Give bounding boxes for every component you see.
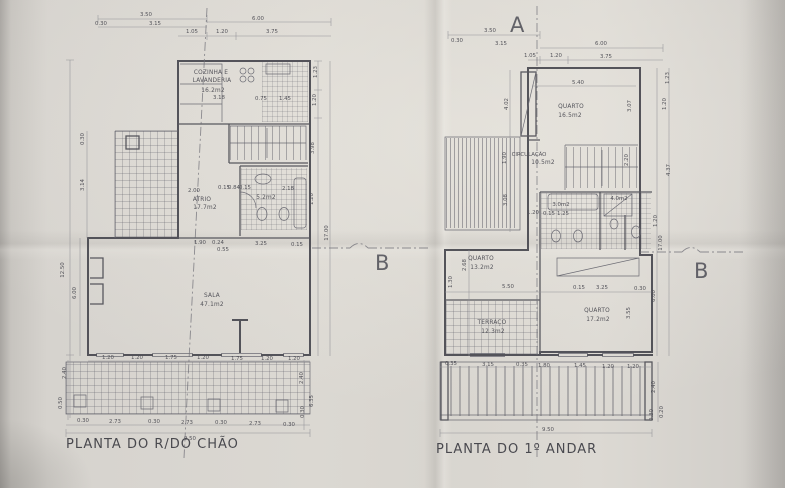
toilet xyxy=(257,208,267,221)
dim-label: 3.18 xyxy=(213,95,226,101)
room-area-sala: 47.1m2 xyxy=(200,302,224,308)
dim-label: 1.23 xyxy=(313,66,319,78)
dim-label: 3.50 xyxy=(140,12,153,18)
dim-label: 1.20 xyxy=(627,364,640,370)
room-label-kitchen: LAVANDERIA xyxy=(193,78,232,84)
stove-burner xyxy=(240,68,246,74)
room-label-quarto3: QUARTO xyxy=(584,308,610,314)
dim-label: 1.90 xyxy=(194,240,207,246)
caption-first-floor: PLANTA DO 1º ANDAR xyxy=(436,442,597,457)
room-label-kitchen: COZINHA E xyxy=(194,70,228,76)
dim-label: 1.20 xyxy=(527,210,540,216)
right-plan-linework xyxy=(440,31,669,437)
dim-label: 17.00 xyxy=(324,225,330,241)
pergola-frame xyxy=(440,362,652,420)
room-area-kitchen: 16.2m2 xyxy=(201,88,225,94)
dim-label: 0.30 xyxy=(634,286,647,292)
dim-label: 3.15 xyxy=(149,21,161,27)
dim-label: 2.68 xyxy=(462,258,468,271)
right-plan-labels: 3.50 0.30 3.15 6.00 1.05 1.20 3.75 5.40 … xyxy=(445,28,672,433)
dim-label: 0.35 xyxy=(445,361,457,367)
dim-label: 0.15 xyxy=(239,185,251,191)
bidet xyxy=(279,208,289,221)
room-area-quarto2: 13.2m2 xyxy=(470,265,494,271)
dim-label: 1.20 xyxy=(216,29,229,35)
section-marker-b: B xyxy=(694,259,708,283)
sink xyxy=(610,219,618,229)
terrace-columns xyxy=(74,395,288,412)
dim-label: 3.75 xyxy=(600,54,612,60)
dim-label: 3.15 xyxy=(495,41,507,47)
dim-label: 1.75 xyxy=(165,355,177,361)
dim-label: 3.75 xyxy=(266,29,278,35)
dim-label: 0.15 xyxy=(543,211,555,217)
room-area-is-suite: 4.0m2 xyxy=(610,196,627,202)
left-plan-labels: 3.50 0.30 3.15 6.00 1.05 1.20 3.75 COZIN… xyxy=(58,12,330,442)
dim-label: 3.55 xyxy=(626,307,632,319)
dim-label: 1.05 xyxy=(524,53,536,59)
interior-walls xyxy=(445,140,652,352)
dimension-lines xyxy=(440,31,669,437)
dim-label: 0.35 xyxy=(516,362,528,368)
dim-label: 2.73 xyxy=(181,420,193,426)
room-label-atrio: ATRIO xyxy=(193,197,212,203)
dim-label: 1.30 xyxy=(448,275,454,288)
dim-label: 1.05 xyxy=(186,29,198,35)
room-area-bath: 5.2m2 xyxy=(256,195,276,201)
toilet xyxy=(552,230,561,242)
dim-label: 5.40 xyxy=(572,80,585,86)
dim-label: 0.30 xyxy=(451,38,464,44)
room-area-circulacao: 10.5m2 xyxy=(531,160,555,166)
dim-label: 3.15 xyxy=(482,362,494,368)
dim-label: 3.14 xyxy=(80,178,86,191)
room-label-quarto1: QUARTO xyxy=(558,104,584,110)
dim-label-total: 9.50 xyxy=(542,427,555,433)
stove-burner xyxy=(248,76,254,82)
floor-plan-drawing: A B B 3.50 0.30 3.15 6.00 1.05 1.20 3.75… xyxy=(0,0,785,488)
dim-label: 0.50 xyxy=(58,396,64,409)
dim-label: 0.30 xyxy=(300,405,306,418)
dim-label: 0.30 xyxy=(80,132,86,145)
room-area-atrio: 17.7m2 xyxy=(193,205,217,211)
dim-label: 0.75 xyxy=(255,96,267,102)
dim-label: 3.98 xyxy=(310,141,316,154)
room-label-terraco: TERRAÇO xyxy=(477,320,507,326)
dim-label: 1.90 xyxy=(502,151,508,164)
dim-label: 0.30 xyxy=(77,418,90,424)
stove-burner xyxy=(240,76,246,82)
dim-label: 1.20 xyxy=(550,53,563,59)
dim-label: 1.20 xyxy=(312,93,318,106)
dim-label: 1.20 xyxy=(602,364,615,370)
dim-label: 2.20 xyxy=(624,153,630,166)
dim-label: 0.30 xyxy=(95,21,108,27)
dim-label: 6.00 xyxy=(595,41,608,47)
section-line-b-left xyxy=(312,244,428,249)
dim-label: 1.75 xyxy=(231,356,243,362)
dim-label: 17.00 xyxy=(658,235,664,251)
room-label-sala: SALA xyxy=(204,293,220,299)
bidet xyxy=(574,230,583,242)
dim-label: 1.20 xyxy=(131,355,144,361)
room-area-terraco: 12.3m2 xyxy=(481,329,505,335)
room-area-quarto1: 16.5m2 xyxy=(558,113,582,119)
stove-burner xyxy=(248,68,254,74)
dim-label: 2.40 xyxy=(62,366,68,379)
dim-label: 1.25 xyxy=(557,211,569,217)
pergola-post xyxy=(441,362,448,420)
stairs-outline xyxy=(565,145,638,190)
dim-label: 1.80 xyxy=(538,363,551,369)
stairs-outline xyxy=(230,126,306,160)
dim-label: 1.20 xyxy=(309,192,315,205)
photographed-plan-sheet: A B B 3.50 0.30 3.15 6.00 1.05 1.20 3.75… xyxy=(0,0,785,488)
dim-label: 1.45 xyxy=(279,96,291,102)
dim-label: 1.20 xyxy=(261,356,274,362)
section-marker-b: B xyxy=(375,251,389,275)
dim-label: 4.02 xyxy=(504,98,510,110)
bathtub xyxy=(294,178,306,228)
dim-label: 5.50 xyxy=(502,284,515,290)
dim-label: 4.37 xyxy=(666,164,672,176)
dim-label: 3.25 xyxy=(255,241,267,247)
room-label-circulacao: CIRCULAÇÃO xyxy=(512,151,547,158)
dim-label: 2.18 xyxy=(282,186,295,192)
dim-label: 6.00 xyxy=(252,16,265,22)
room-area-is-small: 3.0m2 xyxy=(552,202,569,208)
dim-label: 0.30 xyxy=(215,420,228,426)
section-marker-a: A xyxy=(510,13,525,37)
dim-label: 3.25 xyxy=(596,285,608,291)
dim-label: 2.73 xyxy=(249,421,261,427)
dim-label: 3.50 xyxy=(484,28,497,34)
dim-label: 1.23 xyxy=(665,72,671,84)
section-line-b-right xyxy=(640,248,745,253)
dim-label: 1.20 xyxy=(288,356,301,362)
dim-label: 1.20 xyxy=(197,355,210,361)
caption-ground-floor: PLANTA DO R/DO CHÃO xyxy=(66,436,239,452)
room-label-quarto2: QUARTO xyxy=(468,256,494,262)
dim-label: 3.07 xyxy=(627,100,633,112)
room-area-quarto3: 17.2m2 xyxy=(586,317,610,323)
wardrobe xyxy=(557,258,639,276)
fireplace-niche xyxy=(90,258,103,304)
dim-label: 0.15 xyxy=(573,285,585,291)
dim-label: 0.24 xyxy=(212,240,225,246)
dim-label: 12.50 xyxy=(60,262,66,278)
dim-label: 0.30 xyxy=(283,422,296,428)
roof-edge xyxy=(445,137,520,230)
dim-label: 3.08 xyxy=(503,193,509,206)
dim-label: 0.15 xyxy=(291,242,303,248)
dim-label: 0.30 xyxy=(148,419,161,425)
dim-label: 1.20 xyxy=(653,214,659,227)
dim-label: 2.73 xyxy=(109,419,121,425)
patio-column xyxy=(126,136,139,149)
dim-label: 0.20 xyxy=(659,405,665,418)
dim-label: 2.40 xyxy=(651,380,657,393)
door-swing xyxy=(240,192,256,208)
dim-label: 6.35 xyxy=(309,395,315,407)
dim-label: 6.00 xyxy=(651,289,657,302)
dim-label: 1.20 xyxy=(662,97,668,110)
dim-label: 0.55 xyxy=(217,247,229,253)
dim-label: 2.40 xyxy=(299,371,305,384)
dim-label: 1.45 xyxy=(574,363,586,369)
dim-label: 1.20 xyxy=(102,355,115,361)
dim-label: 6.00 xyxy=(72,286,78,299)
sink xyxy=(255,174,271,184)
dim-label: 0.30 xyxy=(649,408,655,421)
wall-pier xyxy=(233,320,247,352)
dim-label: 2.00 xyxy=(188,188,201,194)
